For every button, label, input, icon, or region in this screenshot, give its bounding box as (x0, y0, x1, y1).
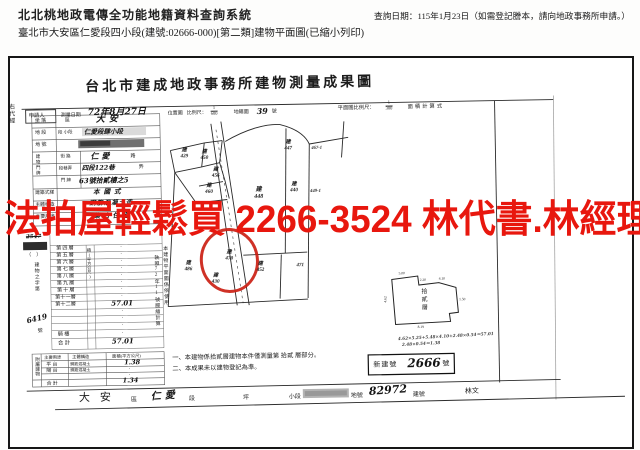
floor-area-column-header: 積(平方公尺) (87, 248, 92, 279)
floor-name: 第四層 (56, 246, 75, 252)
info-tail: 弄 (139, 165, 144, 170)
plan-dim: 5.00 (399, 272, 405, 276)
footer-building-label: 建號 (413, 392, 425, 398)
map-parcel-label: 467-1 (311, 145, 322, 150)
info-value: 仁愛 (90, 152, 112, 160)
parcel-no: 452 (257, 268, 265, 274)
attached-total-value: 1.34 (123, 377, 139, 384)
footer-district-unit: 區 (131, 397, 137, 403)
attached-area: 1.38 (124, 359, 140, 366)
parcel-no: 486 (185, 267, 193, 273)
doc-number-prefix: 建物之字第 (33, 262, 39, 292)
plan-dim: 8.19 (418, 326, 424, 330)
plan-scale-denominator: 300 (386, 105, 393, 111)
info-value: 大安 (96, 115, 122, 124)
attached-col-structure: 主體構造 (72, 355, 89, 360)
floor-name: 第五層 (56, 253, 75, 259)
floor-total-value: 57.01 (112, 337, 134, 344)
plan-dim: 4.62 (384, 296, 388, 302)
floor-name: 第十層 (57, 288, 76, 294)
watermark-text: 法拍屋輕鬆買 2266-3524 林代書.林經理 (4, 201, 640, 241)
map-parcel-label-circled: 建470 (225, 250, 233, 262)
location-map-label: 位置圖 (168, 111, 183, 116)
scanned-document: 台北市建成地政事務所建物測量成果圖 右代經 申請人 測量日期 72年8月27日 … (7, 52, 636, 450)
map-parcel-label: 471 (296, 263, 304, 269)
map-parcel-label: 建430 (212, 274, 220, 286)
parcel-no: 430 (212, 280, 220, 286)
floor-name: 第六層 (56, 260, 75, 266)
floor-name: 第九層 (57, 281, 76, 287)
footer-parcel-no: 82972 (368, 383, 407, 397)
parcel-no: 460 (205, 190, 213, 196)
attached-use: 平 台 (46, 363, 57, 368)
cadastre-map-unit: 號 (272, 110, 277, 115)
info-value: 四段122巷 (82, 165, 115, 172)
scale-label: 比例尺： (187, 111, 207, 116)
parcel-no: 467-1 (311, 145, 322, 150)
plan-scale-label: 平面圖比例尺： (338, 106, 375, 112)
footer-section: 仁愛 (151, 391, 180, 403)
new-building-no-label: 新建號 (373, 361, 397, 368)
map-parcel-label: 建456 (212, 168, 220, 180)
info-value: 本國式 (93, 188, 125, 195)
new-building-no-value: 2666 (407, 357, 441, 370)
query-date: 查詢日期：115年1月23日（如需登記謄本，請向地政事務所申請。） (374, 12, 630, 21)
info-value: 63號拾貳樓之5 (79, 176, 129, 184)
floor-name: 第七層 (57, 267, 76, 273)
info-sub: 段巷弄 (59, 166, 73, 171)
info-sub: 街 路 (60, 154, 70, 159)
door-plate-label: 建物門牌 (35, 154, 40, 176)
attached-total-label: 合 計 (47, 381, 58, 386)
floor-value: · (120, 245, 122, 251)
query-system-page: 北北桃地政電傳全功能地籍資料查詢系統 查詢日期：115年1月23日（如需登記謄本… (0, 0, 640, 450)
footer-section-unit: 段 (189, 396, 195, 402)
parcel-no: 429 (180, 154, 188, 160)
info-sub: 區 (65, 118, 70, 123)
map-parcel-label: 449-1 (310, 188, 321, 193)
parcel-no: 440 (290, 188, 298, 194)
floor-value: · (120, 266, 122, 272)
scanned-document-viewport: 台北市建成地政事務所建物測量成果圖 右代經 申請人 測量日期 72年8月27日 … (8, 56, 634, 449)
info-sub: 段 小段 (58, 130, 73, 135)
plan-dim: 2.20 (420, 279, 426, 283)
info-label: 坐 落 (35, 119, 46, 124)
floor-blank-value: · (122, 323, 124, 329)
vertical-note-col1: 本建物平面圖係依使用 (162, 246, 168, 306)
map-parcel-label: 建460 (205, 184, 213, 196)
floor-name: 第十一層 (55, 295, 76, 301)
floor-name: 第十二層 (55, 302, 76, 308)
area-calc-label: 面積計算式 (408, 105, 445, 111)
footer-parcel-label: 地號 (351, 393, 363, 399)
attached-structure: 鋼筋混凝土 (70, 362, 90, 366)
floor-value: · (121, 273, 123, 279)
info-label: 建築式樣 (35, 192, 54, 197)
parcel-no: 471 (296, 263, 304, 269)
attached-title: 附屬建物 (33, 357, 38, 376)
attached-col-use: 主要用途 (44, 356, 61, 361)
map-parcel-label: 建447 (284, 140, 292, 152)
floor-blank-value: · (121, 309, 123, 315)
attached-structure: 鋼筋混凝土 (70, 368, 90, 372)
parcel-no: 449-1 (310, 188, 321, 193)
floor-value: · (120, 252, 122, 258)
plan-dim: 1.50 (459, 298, 465, 302)
floor-name: 第八層 (57, 274, 76, 280)
map-parcel-label: 建486 (184, 261, 192, 273)
map-parcel-label: 建450 (200, 150, 208, 162)
floor-value: · (120, 259, 122, 265)
paren-mark: （ ） (26, 253, 41, 258)
footer-signature: 林文 (465, 388, 479, 395)
map-parcel-label: 建452 (256, 262, 264, 274)
info-sub: 門 牌 (61, 178, 71, 183)
qilou-label: 騎 樓 (58, 332, 70, 337)
system-title: 北北桃地政電傳全功能地籍資料查詢系統 (18, 9, 252, 21)
scale-denominator: 600 (211, 110, 218, 116)
footer-district: 大安 (79, 392, 121, 404)
footer-subsection-unit: 小段 (289, 394, 301, 400)
doc-number-unit: 號 (38, 329, 43, 334)
map-parcel-label: 建440 (290, 182, 298, 194)
info-tail: 路 (130, 154, 135, 159)
floor-total-label: 合 計 (58, 341, 70, 347)
document-subtitle: 臺北市大安區仁愛段四小段(建號:02666-000)[第二類]建物平面圖(已縮小… (18, 29, 364, 39)
parcel-no: 456 (212, 174, 220, 180)
floor-plan-label: 拾貳層 (420, 288, 426, 312)
left-margin-text: 右代經 (7, 103, 13, 124)
plan-dim: 4.10 (439, 278, 445, 282)
floor-blank-value: · (121, 316, 123, 322)
attached-use: 陽 台 (46, 369, 57, 374)
parcel-no: 447 (284, 146, 292, 152)
floor-value: 57.01 (111, 299, 133, 306)
cadastre-map-no: 39 (257, 107, 268, 115)
floor-value: · (121, 287, 123, 293)
map-parcel-label: 建429 (180, 148, 188, 160)
survey-date-label: 測量日期 (61, 113, 81, 118)
new-building-no-unit: 號 (442, 360, 449, 367)
floor-value: · (121, 280, 123, 286)
info-value: 仁愛段肆小段 (84, 128, 123, 135)
cadastre-map-label: 地籍圖 (234, 110, 249, 115)
info-label: 地 段 (35, 131, 46, 136)
parcel-no: 470 (225, 256, 233, 262)
parcel-no: 450 (200, 156, 208, 162)
info-label: 地 號 (35, 143, 46, 148)
footer-ping: 坪 (243, 395, 249, 401)
